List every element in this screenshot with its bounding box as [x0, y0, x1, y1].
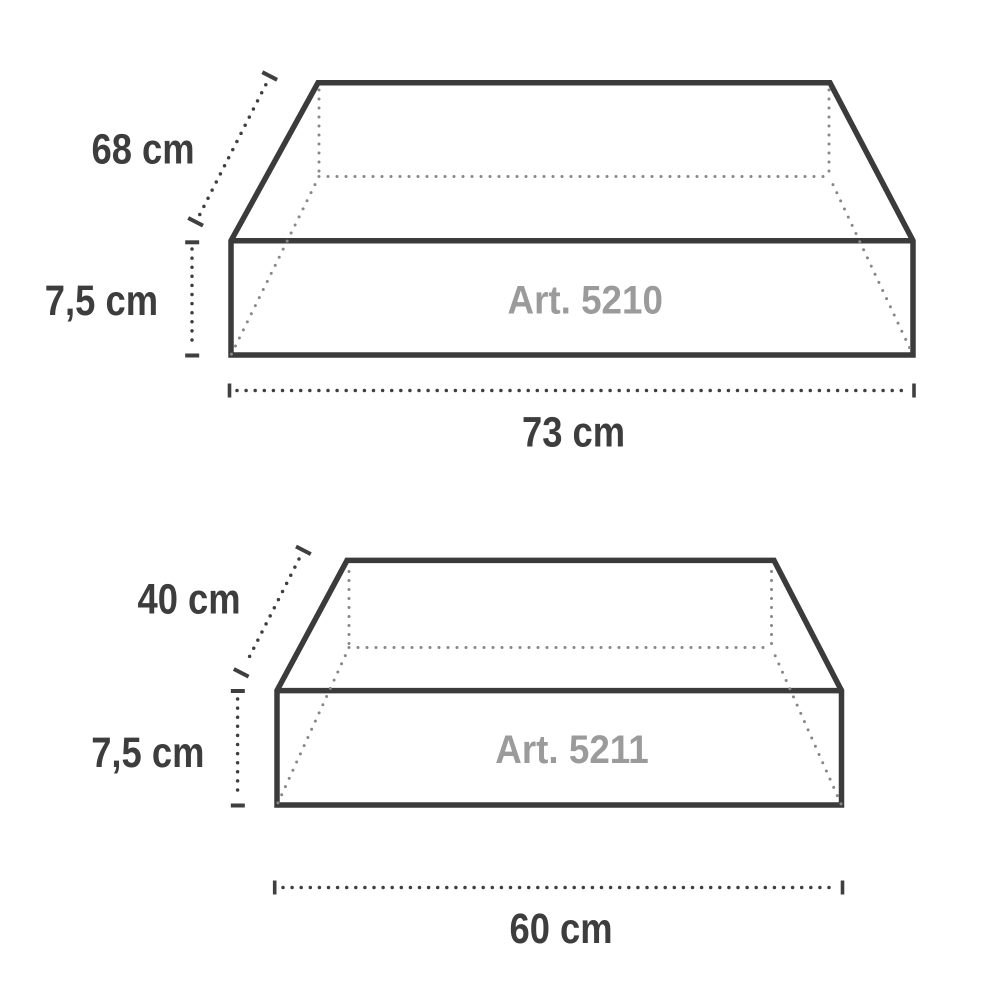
svg-text:7,5 cm: 7,5 cm [45, 277, 158, 324]
svg-text:40 cm: 40 cm [138, 576, 241, 623]
svg-text:73 cm: 73 cm [522, 409, 625, 456]
svg-text:7,5 cm: 7,5 cm [91, 729, 204, 776]
svg-text:60 cm: 60 cm [510, 905, 613, 952]
svg-text:68 cm: 68 cm [92, 126, 195, 173]
svg-text:Art. 5210: Art. 5210 [508, 278, 663, 323]
svg-text:Art. 5211: Art. 5211 [495, 728, 648, 773]
